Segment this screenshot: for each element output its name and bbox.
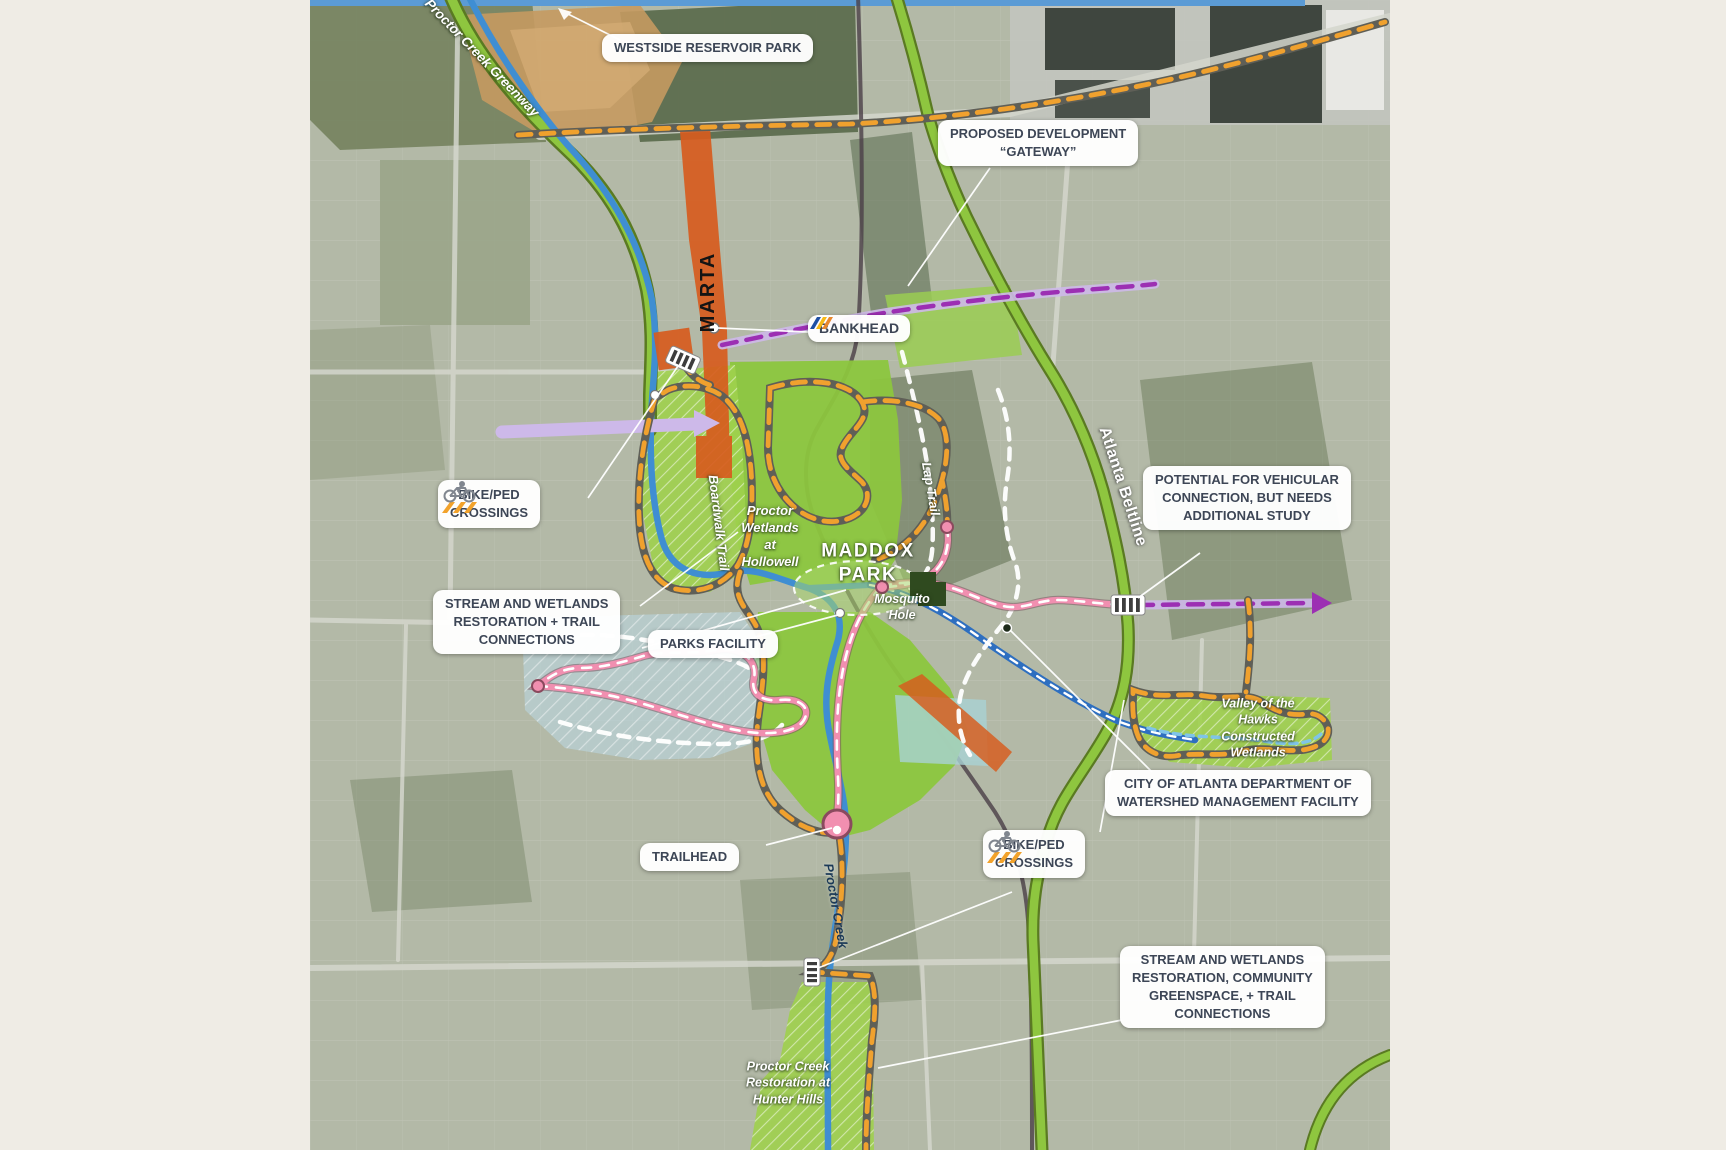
callout-text: STREAM AND WETLANDS xyxy=(1132,951,1313,969)
callout-text: PROPOSED DEVELOPMENT xyxy=(950,125,1126,143)
callout-text: RESTORATION, COMMUNITY xyxy=(1132,969,1313,987)
callout-potential-vehicular-connection: POTENTIAL FOR VEHICULAR CONNECTION, BUT … xyxy=(1143,466,1351,530)
callout-bankhead-station: BANKHEAD xyxy=(808,315,910,342)
bike-crossing-icon xyxy=(438,480,484,514)
callout-text: TRAILHEAD xyxy=(652,848,727,866)
callout-text: “GATEWAY” xyxy=(950,143,1126,161)
aerial-map: WESTSIDE RESERVOIR PARK PROPOSED DEVELOP… xyxy=(310,0,1390,1150)
callout-text: WESTSIDE RESERVOIR PARK xyxy=(614,39,801,57)
label-proctor-wetlands-hollowell: Proctor Wetlands at Hollowell xyxy=(741,503,799,571)
callout-bike-ped-crossings-left: BIKE/PED CROSSINGS xyxy=(438,480,540,528)
callout-text: WATERSHED MANAGEMENT FACILITY xyxy=(1117,793,1359,811)
callout-text: CONNECTIONS xyxy=(1132,1005,1313,1023)
crosswalk-icon xyxy=(804,958,820,986)
callout-text: POTENTIAL FOR VEHICULAR xyxy=(1155,471,1339,489)
lavender-arrow-line xyxy=(502,424,696,432)
callout-text: ADDITIONAL STUDY xyxy=(1155,507,1339,525)
callout-proposed-development-gateway: PROPOSED DEVELOPMENT “GATEWAY” xyxy=(938,120,1138,166)
callout-text: CONNECTIONS xyxy=(445,631,608,649)
label-proctor-creek-restoration-hunter-hills: Proctor Creek Restoration at Hunter Hill… xyxy=(746,1059,830,1108)
label-valley-of-the-hawks: Valley of the Hawks Constructed Wetlands xyxy=(1221,696,1295,761)
callout-trailhead: TRAILHEAD xyxy=(640,843,739,871)
callout-text: PARKS FACILITY xyxy=(660,635,766,653)
marta-logo-icon xyxy=(808,315,834,331)
callout-text: RESTORATION + TRAIL xyxy=(445,613,608,631)
bike-crossing-icon xyxy=(983,830,1029,864)
callout-text: CONNECTION, BUT NEEDS xyxy=(1155,489,1339,507)
callout-bike-ped-crossings-right: BIKE/PED CROSSINGS xyxy=(983,830,1085,878)
label-marta-line: MARTA xyxy=(695,252,721,333)
callout-westside-reservoir-park: WESTSIDE RESERVOIR PARK xyxy=(602,34,813,62)
trailhead-circle-icon xyxy=(823,810,851,838)
callout-text: CITY OF ATLANTA DEPARTMENT OF xyxy=(1117,775,1359,793)
crosswalk-icon xyxy=(1111,595,1145,615)
callout-stream-wetlands-restoration-right: STREAM AND WETLANDS RESTORATION, COMMUNI… xyxy=(1120,946,1325,1028)
callout-text: STREAM AND WETLANDS xyxy=(445,595,608,613)
callout-stream-wetlands-restoration-left: STREAM AND WETLANDS RESTORATION + TRAIL … xyxy=(433,590,620,654)
planning-map-page: WESTSIDE RESERVOIR PARK PROPOSED DEVELOP… xyxy=(0,0,1726,1150)
callout-text: GREENSPACE, + TRAIL xyxy=(1132,987,1313,1005)
callout-watershed-management-facility: CITY OF ATLANTA DEPARTMENT OF WATERSHED … xyxy=(1105,770,1371,816)
callout-parks-facility: PARKS FACILITY xyxy=(648,630,778,658)
label-maddox-park: MADDOX PARK xyxy=(821,539,914,587)
label-mosquito-hole: Mosquito Hole xyxy=(874,591,930,624)
